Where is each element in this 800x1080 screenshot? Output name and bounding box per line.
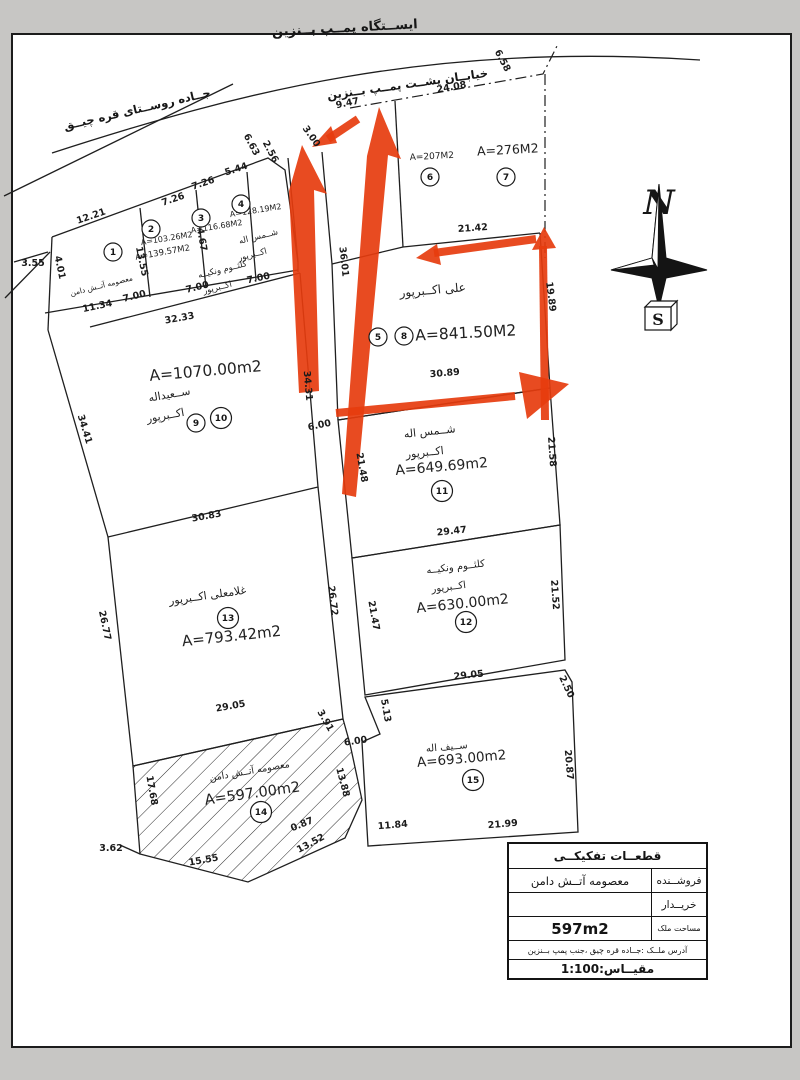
parcel-number-circle: 3: [192, 209, 210, 227]
table-address: آدرس ملــک :جــاده قره چیق ،جنب پمپ بــن…: [509, 941, 706, 960]
svg-text:7: 7: [503, 173, 509, 183]
svg-text:3: 3: [198, 214, 204, 224]
svg-text:13: 13: [222, 614, 235, 624]
scanned-survey-plan: N S ایســتگاه پمــپ بــنزین خیابــان پشـ…: [0, 0, 800, 1080]
title-block-table: قطعــات تفکیکــی فروشــنده معصومه آتــش …: [507, 842, 708, 980]
parcel-number-circle: 12: [456, 612, 477, 633]
parcel-number-circle: 10: [211, 408, 232, 429]
dimension-label: 3.62: [99, 843, 122, 854]
area-value: 597m2: [509, 920, 651, 938]
svg-text:6: 6: [427, 173, 433, 183]
parcel-number-circle: 6: [421, 168, 439, 186]
dimension-label: 21.42: [457, 222, 488, 235]
parcel-number-circle: 5: [369, 328, 387, 346]
parcel-number-circle: 2: [142, 220, 160, 238]
seller-label: فروشــنده: [651, 869, 706, 892]
parcel-number-circle: 15: [463, 770, 484, 791]
parcel-number-circle: 11: [432, 481, 453, 502]
parcel-number-circle: 9: [187, 414, 205, 432]
svg-text:15: 15: [467, 776, 480, 786]
parcel-number-circle: 8: [395, 327, 413, 345]
svg-text:1: 1: [110, 248, 116, 258]
parcel-number-circle: 1: [104, 243, 122, 261]
parcel-number-circle: 13: [218, 608, 239, 629]
svg-text:10: 10: [215, 414, 228, 424]
seller-value: معصومه آتــش دامن: [509, 874, 651, 888]
svg-text:5: 5: [375, 333, 381, 343]
dimension-label: 21.52: [548, 579, 561, 610]
svg-text:12: 12: [460, 618, 473, 628]
compass-south-label: S: [652, 310, 664, 329]
dimension-label: 21.58: [545, 436, 558, 467]
area-label: مساحت ملک: [651, 917, 706, 940]
svg-text:11: 11: [436, 487, 449, 497]
svg-text:9: 9: [193, 419, 199, 429]
table-row-area: مساحت ملک 597m2: [509, 917, 706, 941]
parcel-number-circle: 4: [232, 195, 250, 213]
svg-text:2: 2: [148, 225, 154, 235]
dimension-label: 3.55: [21, 258, 44, 269]
svg-text:4: 4: [238, 200, 244, 210]
buyer-label: خریــدار: [651, 893, 706, 916]
table-row-seller: فروشــنده معصومه آتــش دامن: [509, 869, 706, 893]
parcel-number-circle: 7: [497, 168, 515, 186]
table-row-buyer: خریــدار: [509, 893, 706, 917]
parcel-number-circle: 14: [251, 802, 272, 823]
svg-text:8: 8: [401, 332, 407, 342]
table-scale: مقیــاس:1:100: [509, 960, 706, 978]
svg-text:14: 14: [255, 808, 268, 818]
compass-south-cube: S: [645, 301, 677, 330]
table-title: قطعــات تفکیکــی: [509, 844, 706, 869]
